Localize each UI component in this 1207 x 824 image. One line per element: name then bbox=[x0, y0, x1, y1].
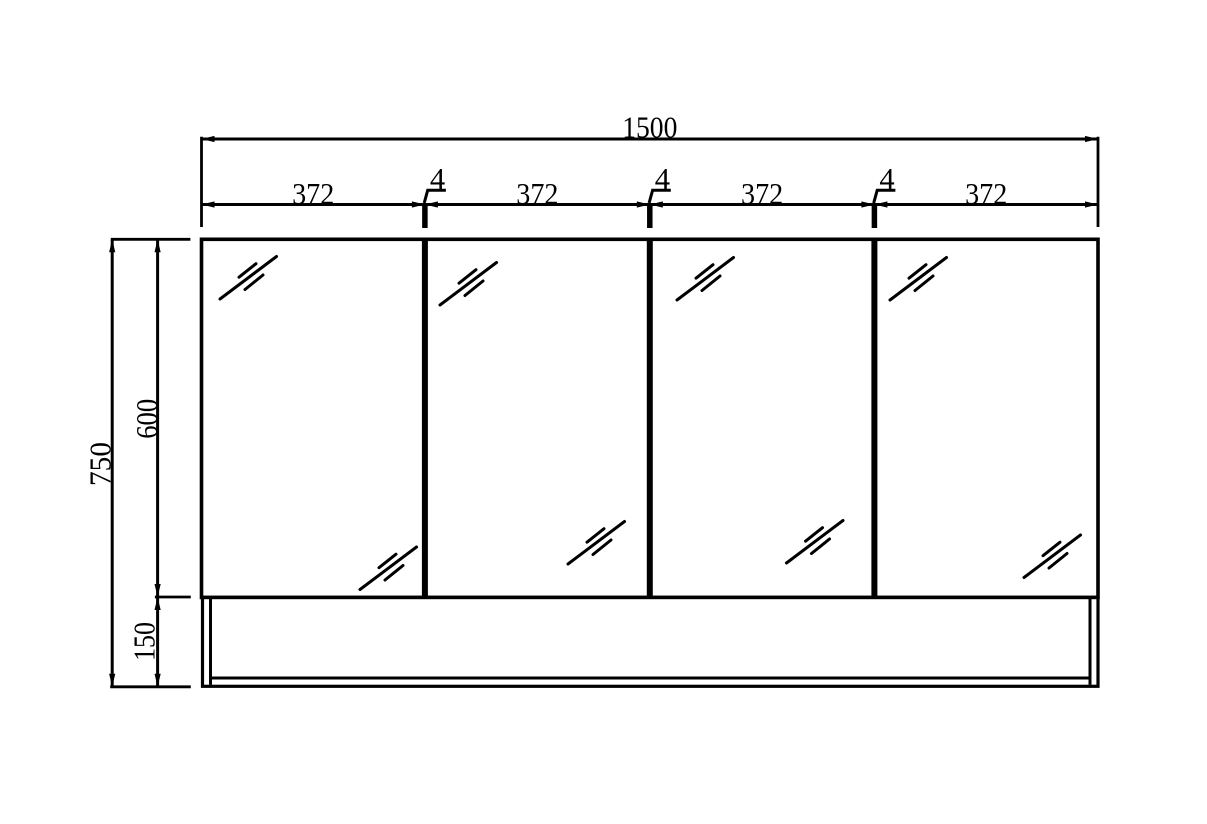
svg-text:150: 150 bbox=[128, 622, 162, 661]
svg-text:750: 750 bbox=[84, 442, 118, 486]
svg-text:372: 372 bbox=[292, 177, 334, 211]
svg-text:600: 600 bbox=[130, 399, 164, 439]
svg-text:372: 372 bbox=[741, 177, 783, 211]
svg-text:4: 4 bbox=[430, 162, 445, 196]
svg-text:372: 372 bbox=[516, 177, 558, 211]
svg-text:372: 372 bbox=[965, 177, 1007, 211]
svg-text:4: 4 bbox=[655, 162, 670, 196]
svg-text:4: 4 bbox=[879, 162, 894, 196]
svg-text:1500: 1500 bbox=[622, 110, 677, 144]
